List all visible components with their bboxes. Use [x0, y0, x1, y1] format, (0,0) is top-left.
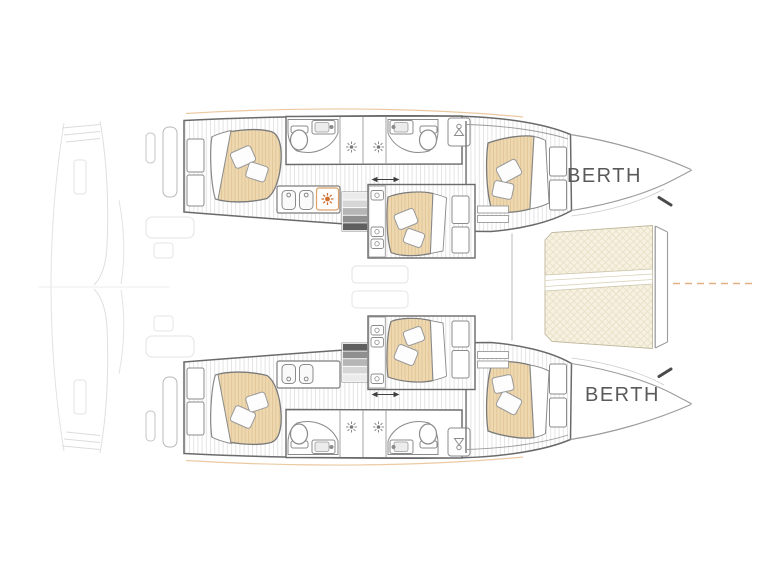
trampoline — [545, 226, 653, 349]
toilet-icon — [291, 126, 309, 150]
headboard-shelf — [187, 175, 204, 206]
headboard-shelf — [550, 180, 567, 210]
deck-shelf — [478, 206, 509, 213]
headboard-shelf — [187, 139, 204, 172]
companionway-stairs — [342, 192, 368, 231]
chainplate-tick — [659, 198, 671, 206]
cabinet-fixture-icon — [371, 191, 384, 201]
aft-cabin-bed — [187, 130, 281, 206]
cabinet-fixture-icon — [371, 227, 384, 237]
sink-icon — [282, 191, 296, 210]
cabinet-fixture-icon — [371, 239, 384, 249]
headboard-shelf — [452, 196, 469, 224]
toilet-icon — [420, 126, 438, 150]
sink-icon — [300, 191, 314, 210]
shower-head-icon — [373, 142, 384, 153]
center-cabin — [368, 185, 475, 259]
headboard-shelf — [452, 227, 469, 253]
sink-icon — [312, 121, 335, 135]
shower-head-icon — [346, 142, 357, 153]
berth-label-bottom: BERTH — [585, 384, 660, 406]
forward-crossbeam — [655, 226, 668, 348]
bathroom-block — [286, 116, 470, 165]
pillow — [492, 180, 515, 200]
headboard-shelf — [550, 147, 567, 176]
deck-plan-svg: BERTH BERTH — [0, 0, 767, 575]
deck-locker — [163, 127, 177, 197]
berth-label-top: BERTH — [567, 165, 642, 187]
sink-icon — [390, 121, 413, 135]
catamaran-deck-plan: BERTH BERTH — [0, 0, 767, 575]
deck-locker-small — [146, 133, 155, 163]
wardrobe-hanger-icon — [448, 118, 470, 146]
deck-shelf — [478, 216, 509, 223]
stove-burner-icon — [317, 188, 339, 210]
saloon-sketch — [38, 266, 408, 308]
